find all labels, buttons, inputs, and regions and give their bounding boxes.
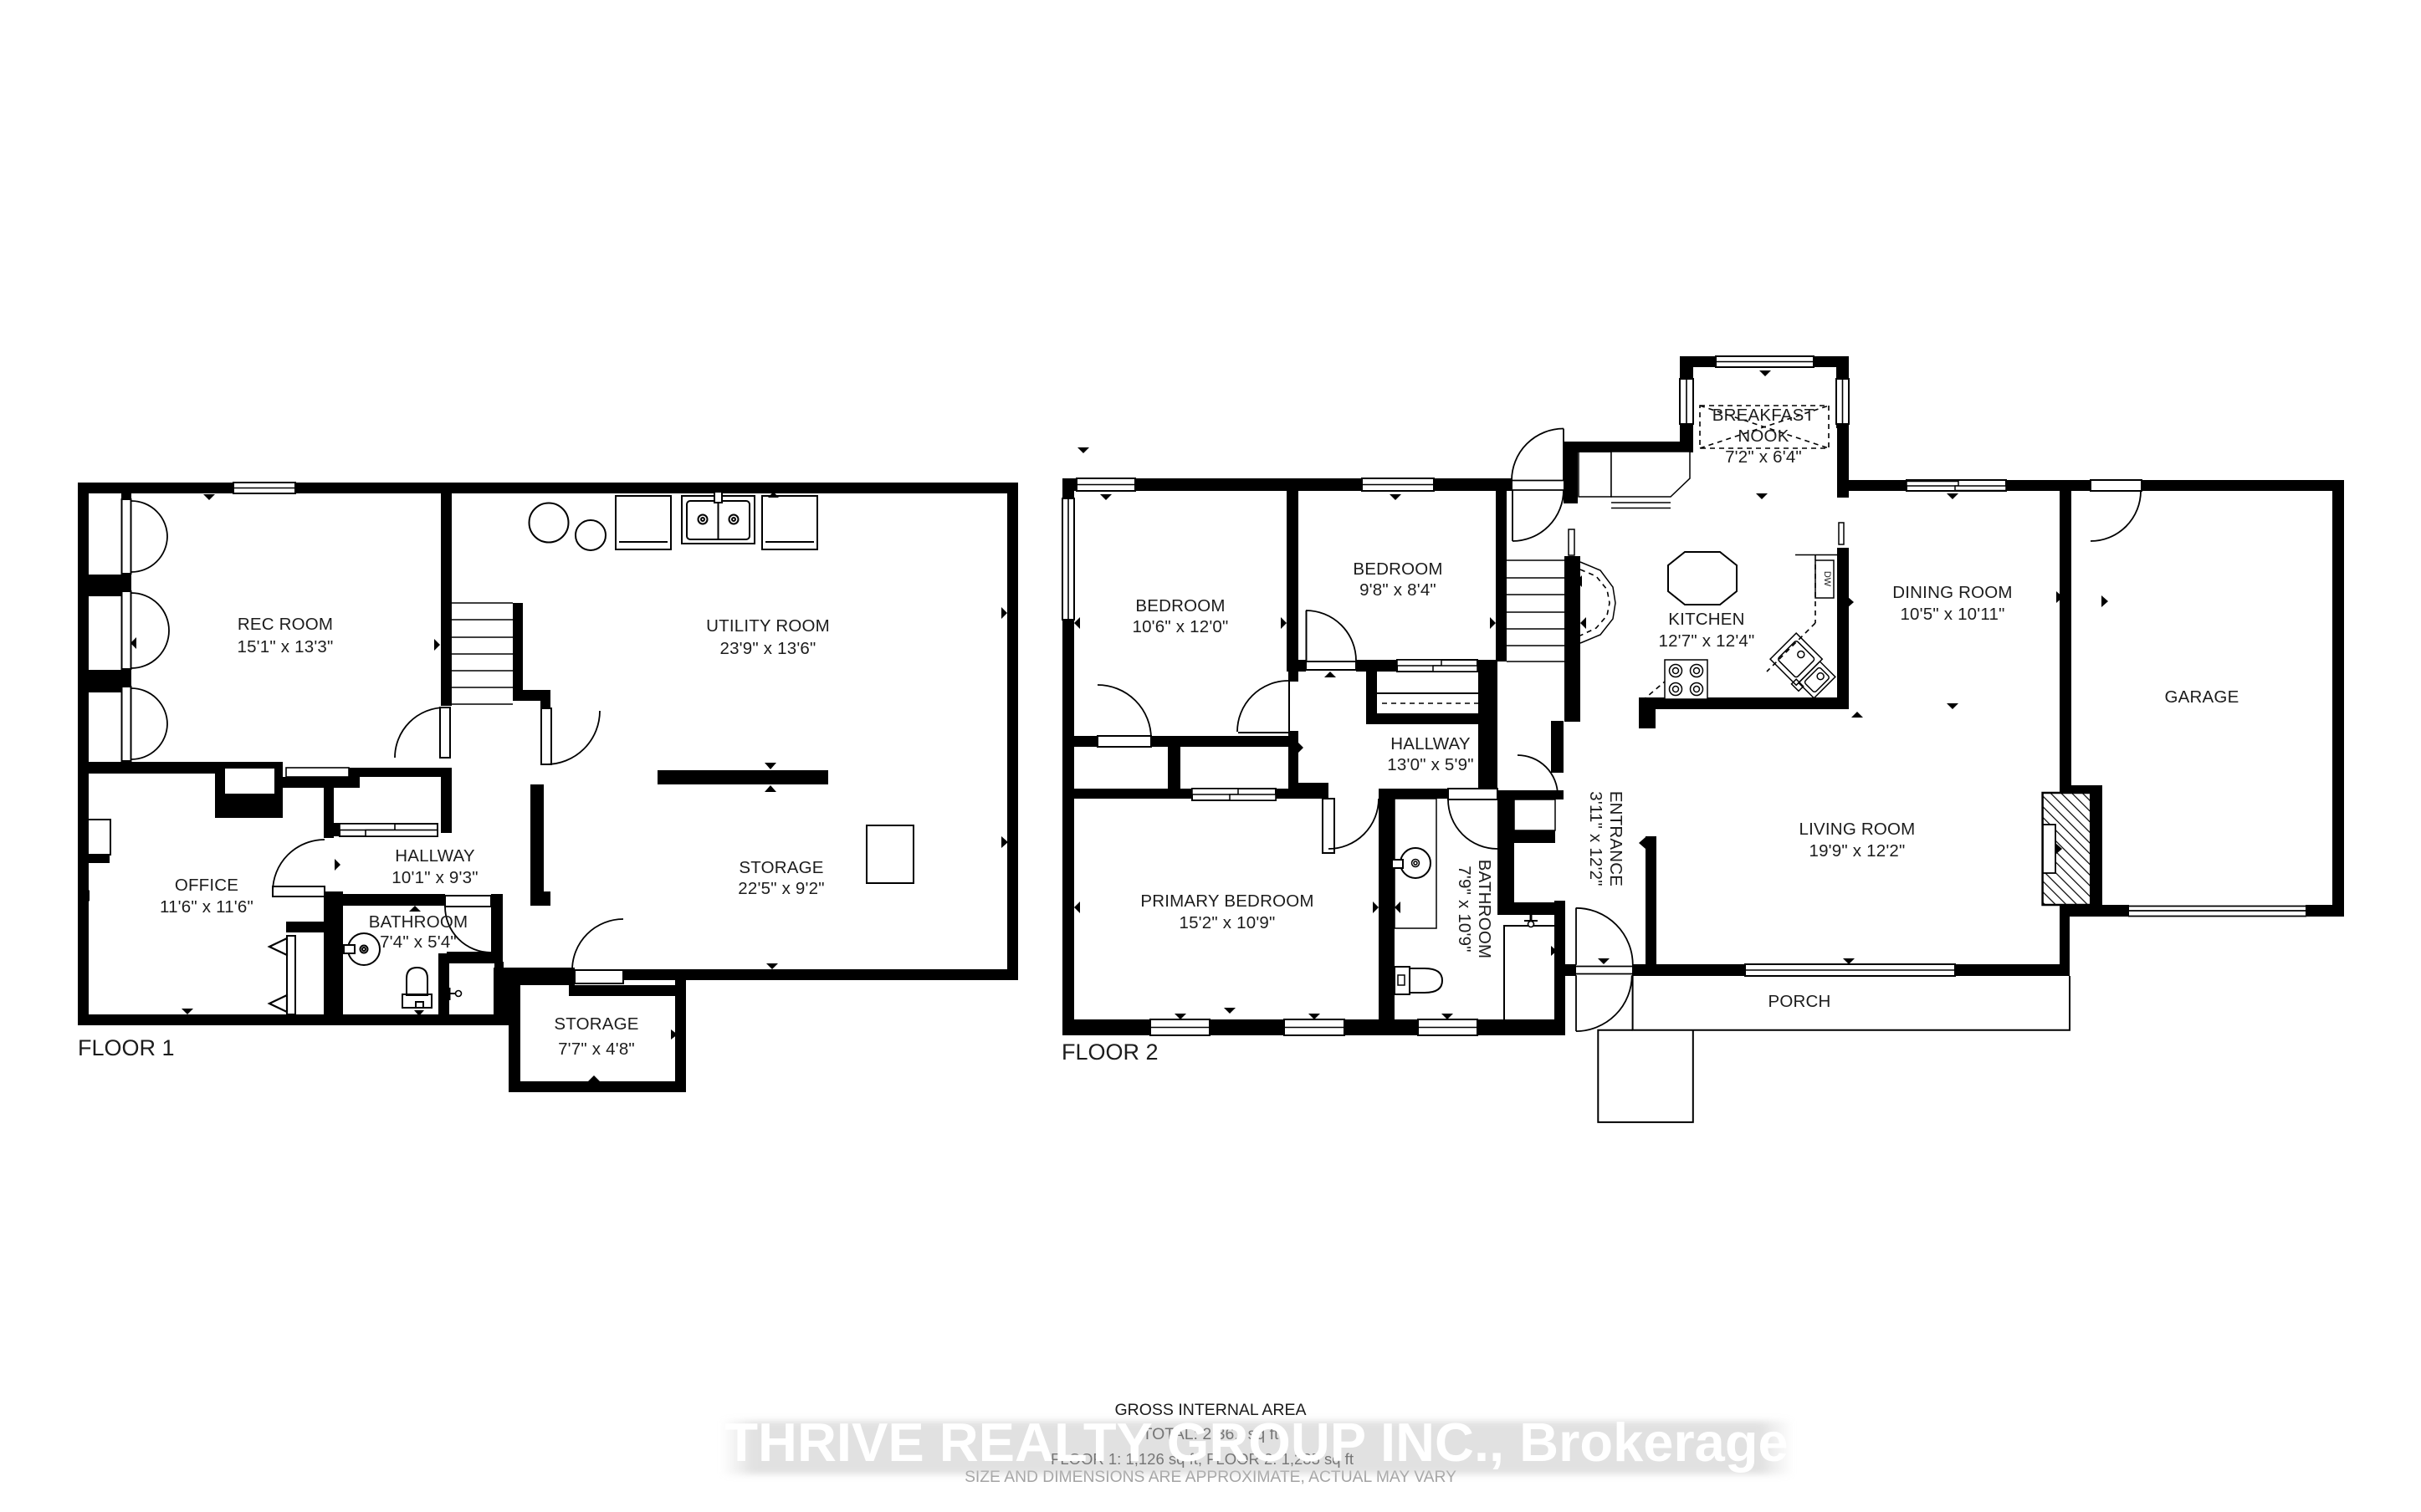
svg-text:7'7" x 4'8": 7'7" x 4'8" [558, 1039, 635, 1059]
svg-text:19'9" x 12'2": 19'9" x 12'2" [1809, 841, 1905, 861]
svg-text:7'2" x 6'4": 7'2" x 6'4" [1725, 447, 1802, 467]
svg-text:11'6" x 11'6": 11'6" x 11'6" [160, 897, 253, 917]
svg-text:STORAGE: STORAGE [554, 1014, 638, 1034]
svg-text:FLOOR 1: FLOOR 1 [78, 1035, 175, 1060]
svg-text:PORCH: PORCH [1768, 992, 1830, 1011]
svg-text:OFFICE: OFFICE [175, 876, 238, 895]
svg-text:BREAKFAST: BREAKFAST [1712, 406, 1815, 425]
svg-text:THRIVE REALTY GROUP INC., Brok: THRIVE REALTY GROUP INC., Brokerage [724, 1412, 1788, 1473]
svg-text:10'5" x 10'11": 10'5" x 10'11" [1900, 605, 2004, 624]
svg-text:BATHROOM: BATHROOM [369, 912, 468, 932]
svg-text:22'5" x 9'2": 22'5" x 9'2" [738, 879, 824, 898]
svg-text:13'0" x 5'9": 13'0" x 5'9" [1387, 755, 1473, 774]
svg-text:9'8" x 8'4": 9'8" x 8'4" [1359, 580, 1436, 600]
svg-text:FLOOR 2: FLOOR 2 [1062, 1039, 1159, 1065]
svg-text:15'1" x 13'3": 15'1" x 13'3" [237, 637, 333, 656]
svg-text:BEDROOM: BEDROOM [1353, 559, 1442, 579]
svg-text:BEDROOM: BEDROOM [1135, 596, 1225, 616]
svg-text:NOOK: NOOK [1738, 427, 1789, 446]
svg-text:23'9" x 13'6": 23'9" x 13'6" [719, 639, 816, 658]
svg-text:LIVING ROOM: LIVING ROOM [1799, 820, 1916, 839]
svg-text:12'7" x 12'4": 12'7" x 12'4" [1658, 631, 1754, 651]
svg-text:10'6" x 12'0": 10'6" x 12'0" [1132, 617, 1228, 636]
svg-text:STORAGE: STORAGE [739, 858, 823, 877]
svg-text:UTILITY ROOM: UTILITY ROOM [706, 616, 830, 636]
svg-text:10'1" x 9'3": 10'1" x 9'3" [392, 868, 478, 887]
svg-text:HALLWAY: HALLWAY [395, 846, 475, 866]
svg-text:REC ROOM: REC ROOM [238, 615, 333, 634]
svg-text:3'11" x 12'2": 3'11" x 12'2" [1586, 791, 1605, 886]
svg-text:15'2" x 10'9": 15'2" x 10'9" [1179, 913, 1275, 932]
svg-text:BATHROOM: BATHROOM [1475, 860, 1494, 959]
svg-text:7'4" x 5'4": 7'4" x 5'4" [380, 932, 457, 952]
svg-text:PRIMARY BEDROOM: PRIMARY BEDROOM [1140, 891, 1313, 911]
svg-text:HALLWAY: HALLWAY [1390, 734, 1471, 753]
svg-text:7'9" x 10'9": 7'9" x 10'9" [1455, 866, 1474, 952]
svg-text:DW: DW [1822, 571, 1832, 587]
svg-text:ENTRANCE: ENTRANCE [1606, 791, 1625, 886]
svg-text:DINING ROOM: DINING ROOM [1892, 583, 2012, 602]
svg-text:GARAGE: GARAGE [2165, 687, 2239, 707]
svg-text:KITCHEN: KITCHEN [1668, 610, 1744, 629]
